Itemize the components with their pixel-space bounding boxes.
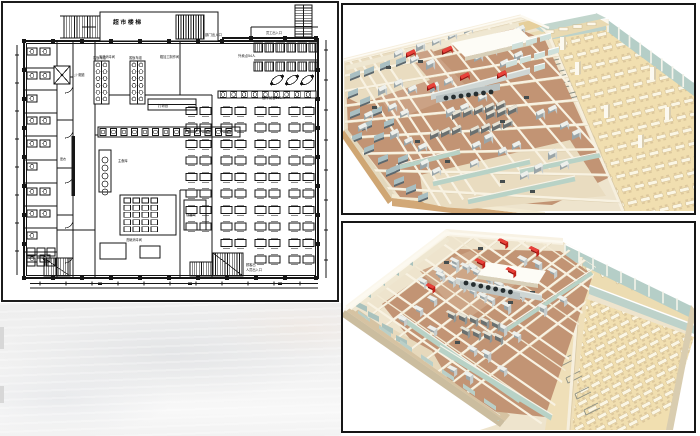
svg-text:顾客出: 顾客出 bbox=[246, 262, 256, 267]
svg-text:烧腊间: 烧腊间 bbox=[186, 212, 196, 217]
svg-text:粗加工制作间: 粗加工制作间 bbox=[160, 54, 179, 59]
svg-text:主食库: 主食库 bbox=[118, 158, 128, 163]
svg-text:清洗消毒间: 清洗消毒间 bbox=[99, 54, 115, 59]
svg-text:超 市 楼 梯: 超 市 楼 梯 bbox=[112, 18, 141, 26]
svg-text:』〕·烟道: 』〕·烟道 bbox=[74, 72, 85, 77]
svg-text:更衣: 更衣 bbox=[60, 156, 66, 161]
svg-text:员工出入口: 员工出入口 bbox=[266, 30, 282, 35]
svg-text:打荷台: 打荷台 bbox=[158, 103, 169, 108]
svg-text:外卖点54人: 外卖点54人 bbox=[238, 53, 256, 58]
svg-text:餐厅就餐300人: 餐厅就餐300人 bbox=[262, 95, 285, 100]
svg-text:洗碗消毒间: 洗碗消毒间 bbox=[126, 237, 142, 242]
svg-text:人员出入口: 人员出入口 bbox=[246, 267, 262, 272]
svg-text:蒸饭车组: 蒸饭车组 bbox=[129, 55, 143, 60]
svg-text:部门出入口: 部门出入口 bbox=[205, 32, 222, 37]
